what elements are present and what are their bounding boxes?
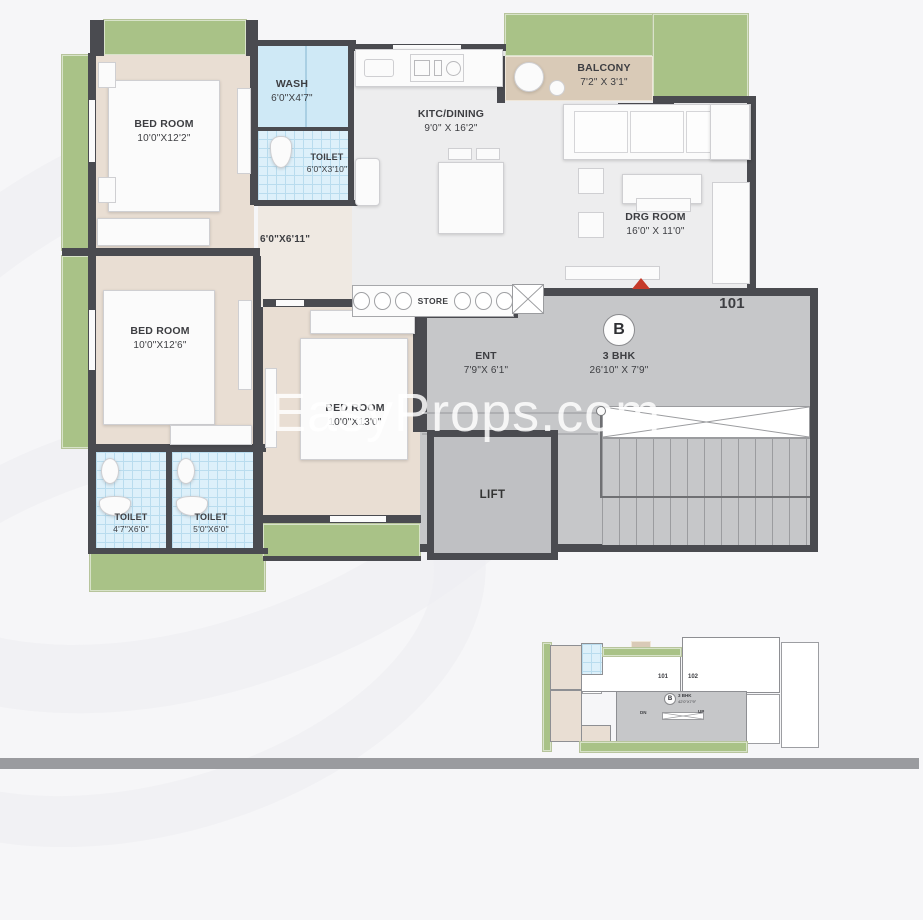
cabinet-icon [710,104,750,160]
door-opening [276,300,304,306]
floor-plan-page: { "watermark": "EasyProps.com", "plan": … [0,0,923,769]
mini-rooms-right [746,694,780,744]
mini-bedroom [551,646,581,689]
store-circle-icon [496,292,513,310]
shaft-icon [512,284,544,314]
unit-number-label: 101 [702,294,762,314]
store-circle-icon [395,292,412,310]
bottom-bar [0,758,919,769]
wall [653,96,755,103]
knob-icon [434,60,442,76]
passage-floor [258,205,354,306]
cupboard-icon [238,300,252,390]
side-table-icon [578,168,604,194]
bedroom2-label: BED ROOM10'0"X12'6" [108,325,212,352]
mini-planter-bottom [580,742,747,752]
bed-icon [103,290,215,425]
staircase-treads [602,438,810,545]
wall [166,452,172,550]
mini-unit-102-label: 102 [688,674,698,680]
nightstand-icon [98,62,116,88]
wash-label: WASH6'0"X4'7" [256,78,328,105]
mini-unit-type: 3 BHK [678,693,692,698]
balcony-strip-top-left [104,20,246,55]
wardrobe-icon [170,425,252,445]
store-circle-icon [475,292,492,310]
unit-badge-letter: B [613,321,625,339]
chair-icon [448,148,472,160]
wall [62,248,260,256]
mini-bedroom [582,726,610,742]
entrance-marker-icon [632,278,650,289]
window [89,100,95,162]
mini-unit-badge: B [664,693,676,705]
unit-badge: B [603,314,635,346]
wall [258,127,352,131]
wall [254,200,358,206]
mini-planter [543,643,551,751]
mini-dn-label: DN [640,710,647,715]
mini-unit-dim: 42'0"X7'9" [678,699,696,704]
watermark: EasyProps.com [270,382,661,444]
mini-toilet [582,644,602,674]
stove-icon [410,54,464,82]
wall [253,307,263,554]
tv-unit-icon [636,198,691,212]
cupboard-icon [237,88,251,174]
wall [90,20,104,56]
lift: LIFT [427,430,558,560]
planter-top-right-strip [505,14,653,56]
nightstand-icon [98,177,116,203]
sink-icon [364,59,394,77]
kitchen-label: KITC/DINING9'0" X 16'2" [392,108,510,135]
mini-rooms-right [781,642,819,748]
toilet-top-label: TOILET6'0"X3'10" [296,152,358,175]
stair-handrail [600,496,810,498]
wall [348,44,354,206]
planter-left-mid [62,256,90,448]
planter-top-right-block [653,14,748,102]
dining-table-icon [438,162,504,234]
mini-up-label: UP [698,709,704,714]
bathtub-icon [355,158,380,206]
drawing-room-label: DRG ROOM16'0" X 11'0" [598,211,713,238]
wall-right-outer-lower [810,296,818,546]
chair-icon [476,148,500,160]
mini-unit-101-label: 101 [658,674,668,680]
store-circle-icon [454,292,471,310]
lift-label: LIFT [480,489,506,501]
mini-unit-102 [682,637,780,693]
planter-under-bedroom3 [263,524,420,557]
planter-bottom-left [90,551,265,591]
key-plan: LIFT7'9"X6'2" LIFT7'9"X6'2" 101 102 B 3 … [540,630,923,765]
round-table-icon [514,62,544,92]
store-circle-icon [374,292,391,310]
toilet-b-label: TOILET5'0"X6'0" [170,512,252,535]
wall [88,548,268,554]
cabinet-icon [712,182,750,284]
wardrobe-icon [97,218,210,246]
mini-bedroom [551,691,581,741]
window [330,516,386,522]
bed-icon [108,80,220,212]
passage-label: 6'0"X6'11" [260,233,340,246]
store-label: STORE [416,296,451,306]
sink-icon [101,458,119,484]
store-shelf: STORE [352,285,514,317]
store-circle-icon [353,292,370,310]
wall [253,256,261,308]
burner-icon [414,60,430,76]
wall [254,40,356,46]
burner-icon [446,61,461,76]
entrance-label: ENT7'9"X 6'1" [444,350,528,377]
wall [263,556,421,561]
wall [246,20,258,56]
toilet-a-label: TOILET4'7"X6'0" [96,512,166,535]
bedroom1-label: BED ROOM10'0"X12'2" [112,118,216,145]
window [89,310,95,370]
wall [88,444,266,452]
balcony-label: BALCONY7'2" X 3'1" [560,62,648,89]
unit-type-label: 3 BHK26'10" X 7'9" [570,350,668,377]
mini-planter [603,648,681,656]
wall [250,53,258,205]
sink-icon [177,458,195,484]
planter-left-upper [62,55,90,250]
